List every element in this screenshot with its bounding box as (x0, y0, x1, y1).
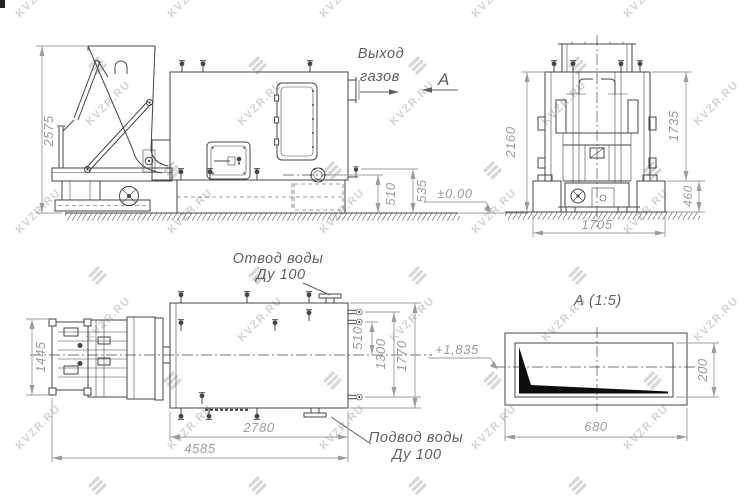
watermark-text: KVZR.RU (622, 0, 671, 20)
watermark-text: KVZR.RU (318, 403, 367, 452)
watermark-logo-icon (485, 373, 500, 388)
elevation-grate-label: +1,835 (435, 342, 479, 357)
watermark-logo-icon (570, 478, 585, 493)
gas-outlet-text-1: Выход (358, 46, 405, 62)
valve-icon (254, 408, 260, 419)
dim-port-spacing: 1300 (373, 338, 388, 369)
detail-title: А (1:5) (573, 293, 622, 309)
dim-foundation-depth: 460 (681, 185, 695, 207)
water-inlet-text-1: Подвод воды (369, 430, 464, 446)
valve-icon (307, 61, 313, 72)
dim-flange-height: 510 (383, 182, 398, 206)
dim-grate-length: 680 (584, 419, 608, 434)
watermark-logo-icon (250, 58, 265, 73)
flue-outlet (348, 77, 359, 103)
dim-drain-height: 535 (414, 179, 429, 203)
watermark-text: KVZR.RU (470, 0, 519, 20)
valve-icon (178, 320, 184, 331)
watermark-logo-icon (570, 268, 585, 283)
valve-icon (244, 292, 250, 303)
valve-icon (178, 408, 184, 419)
watermark-text: KVZR.RU (470, 403, 519, 452)
boiler-body-side (170, 72, 348, 213)
side-port-icon (348, 394, 362, 400)
water-outlet-text-2: Ду 100 (254, 267, 305, 283)
watermark-text: KVZR.RU (166, 0, 215, 20)
inspection-door (207, 142, 250, 179)
watermark-logo-icon (90, 268, 105, 283)
water-outlet-label: Отвод воды Ду 100 (233, 251, 330, 295)
valve-icon (306, 310, 312, 321)
watermark-text: KVZR.RU (318, 187, 367, 236)
gas-outlet-label: Выход газов (358, 46, 405, 95)
elevation-zero-label: ±0.00 (437, 186, 473, 201)
valve-icon (551, 61, 557, 72)
watermark-logo-icon (250, 478, 265, 493)
watermark-text: KVZR.RU (470, 187, 519, 236)
valve-icon (199, 393, 205, 404)
water-outlet-text-1: Отвод воды (233, 251, 324, 267)
valve-icon (272, 320, 278, 331)
gas-flow-arrow-icon (389, 89, 399, 94)
dim-above-foundation: 1735 (666, 110, 681, 141)
hinge-icon (275, 117, 279, 123)
watermark-logo-icon (410, 268, 425, 283)
valve-icon (306, 292, 312, 303)
side-view-dimensions: 2575 510 535 ±0.00 (36, 46, 528, 213)
watermark-text: KVZR.RU (388, 295, 437, 344)
side-view: Выход газов А 2575 510 535 ±0.00 (36, 46, 528, 221)
water-outlet-flange-icon (319, 294, 341, 303)
valve-icon (179, 61, 185, 72)
dim-foundation-width: 1705 (581, 217, 612, 232)
plan-view: Отвод воды Ду 100 Подвод воды Ду 100 144… (26, 251, 463, 463)
valve-icon (200, 61, 206, 72)
watermark-text: KVZR.RU (14, 0, 63, 20)
watermark-logo-icon (645, 373, 660, 388)
dim-drive-width: 1445 (33, 341, 48, 372)
watermark-text: KVZR.RU (622, 403, 671, 452)
gas-outlet-text-2: газов (360, 69, 400, 85)
watermark-logo-icon (90, 478, 105, 493)
watermark-logo-icon (410, 58, 425, 73)
valve-icon (254, 169, 260, 180)
dim-body-length: 2780 (242, 420, 274, 435)
access-panel (275, 83, 317, 160)
watermark-text: KVZR.RU (388, 79, 437, 128)
dim-front-overall-height: 2160 (503, 126, 518, 158)
watermark-text: KVZR.RU (166, 187, 215, 236)
elevation-grate-mark: +1,835 (428, 342, 498, 369)
front-view: 2160 1735 460 1705 (503, 35, 705, 237)
watermark-text: KVZR.RU (540, 79, 589, 128)
dim-overall-length: 4585 (184, 441, 215, 456)
dim-port-to-axis: 510 (350, 326, 365, 350)
valve-icon (178, 292, 184, 303)
watermark-logo-icon (485, 163, 500, 178)
valve-icon (618, 61, 624, 72)
watermark-logo-icon (645, 163, 660, 178)
boiler-technical-drawing: KVZR.RUKVZR.RUKVZR.RUKVZR.RUKVZR.RUKVZR.… (0, 0, 750, 500)
watermark-text: KVZR.RU (692, 79, 741, 128)
valve-icon (637, 61, 643, 72)
dim-side-overall-height: 2575 (41, 115, 56, 147)
watermark-text: KVZR.RU (14, 403, 63, 452)
watermark-logo-icon (165, 373, 180, 388)
ground-hatch (65, 214, 460, 221)
hinge-icon (275, 95, 279, 101)
ground-line (65, 213, 460, 221)
grate-wedge-section (519, 347, 668, 394)
water-inlet-text-2: Ду 100 (390, 447, 441, 463)
watermark-logo-icon (325, 163, 340, 178)
watermark-text: KVZR.RU (692, 295, 741, 344)
scan-artifact (0, 0, 5, 8)
water-inlet-flange-icon (304, 408, 326, 417)
side-port-icon (348, 319, 362, 325)
drain-valve (348, 167, 359, 177)
view-a-label: А (437, 70, 450, 89)
watermark-text: KVZR.RU (318, 0, 367, 20)
foundation (505, 181, 700, 220)
watermark-logo-icon (325, 373, 340, 388)
dim-body-width: 1770 (394, 340, 409, 371)
side-port-icon (348, 309, 362, 315)
dim-grate-height: 200 (695, 358, 710, 383)
technical-drawing-page: KVZR.RUKVZR.RUKVZR.RUKVZR.RUKVZR.RUKVZR.… (0, 0, 750, 500)
drive-unit-plan (49, 317, 170, 400)
hinge-icon (275, 139, 279, 145)
watermark-logo-icon (410, 478, 425, 493)
